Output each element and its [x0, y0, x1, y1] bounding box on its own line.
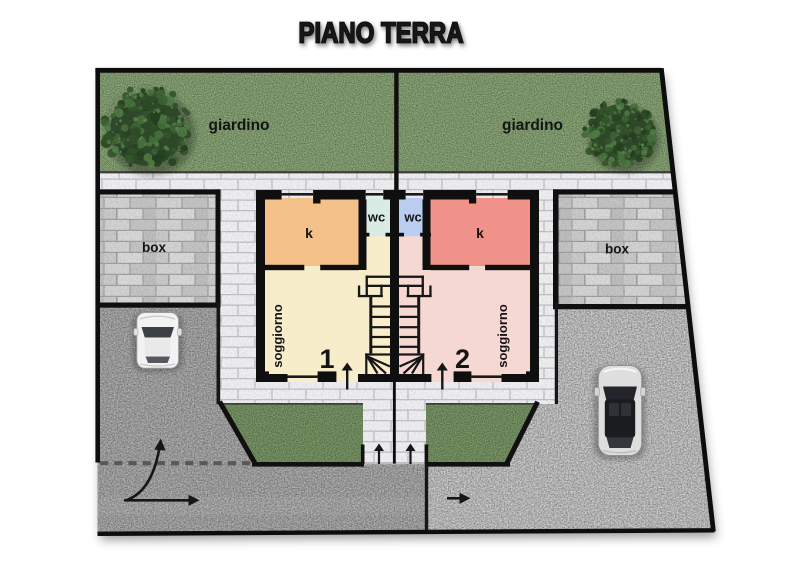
svg-text:PIANO TERRA: PIANO TERRA: [299, 18, 464, 50]
svg-text:box: box: [142, 240, 166, 255]
svg-text:k: k: [476, 225, 484, 241]
svg-text:giardino: giardino: [209, 117, 270, 134]
svg-text:giardino: giardino: [502, 117, 563, 134]
svg-text:soggiorno: soggiorno: [270, 304, 285, 368]
svg-text:wc: wc: [367, 210, 385, 225]
svg-text:1: 1: [319, 344, 334, 374]
svg-text:k: k: [305, 225, 313, 241]
svg-text:2: 2: [455, 344, 470, 374]
svg-text:soggiorno: soggiorno: [495, 304, 510, 368]
svg-text:box: box: [605, 242, 629, 257]
svg-text:wc: wc: [403, 210, 421, 225]
